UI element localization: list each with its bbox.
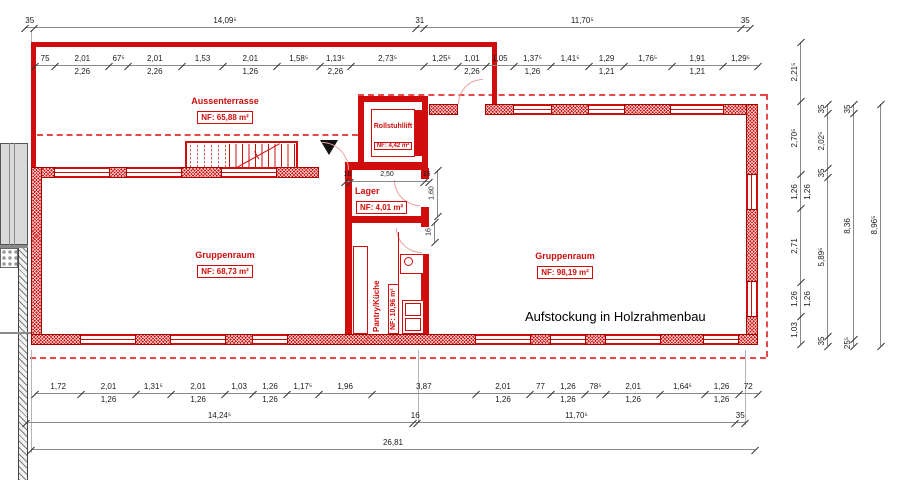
window xyxy=(514,104,551,115)
existing-wall-line xyxy=(9,143,10,245)
lift-wall-bottom xyxy=(345,162,428,170)
appliance-drawer xyxy=(405,303,421,316)
dim-col-right-4: 8,96⁵ xyxy=(880,104,881,346)
dim-row-top-outer: 3514,09⁵3111,70⁵35 xyxy=(25,27,750,28)
existing-wall-hatch xyxy=(18,248,28,480)
existing-wall-line xyxy=(14,143,15,245)
wall-segment xyxy=(551,104,589,115)
wall-segment xyxy=(109,167,127,178)
dashed-terrace-edge xyxy=(37,134,358,136)
wall-segment xyxy=(135,334,171,345)
kitchen-counter-left xyxy=(353,246,368,334)
dashed-outline-bottom xyxy=(30,357,766,359)
area-box: NF: 68,73 m² xyxy=(197,265,253,278)
window xyxy=(589,104,624,115)
dim-row-lager-width: 162,5016 xyxy=(345,181,429,182)
room-area-gruppenraum-rechts: NF: 98,19 m² xyxy=(505,262,625,280)
dim-col-right-1: 2,21⁵2,70⁵1,261,262,711,261,261,03 xyxy=(800,42,801,344)
wall-segment xyxy=(225,334,253,345)
window xyxy=(253,334,287,345)
wall-lager-bottom xyxy=(352,216,421,223)
area-box: NF: 65,88 m² xyxy=(197,111,253,124)
area-box: NF: 4,01 m² xyxy=(356,201,407,214)
dim-row-bottom-mid: 14,24⁵1611,70⁵35 xyxy=(26,422,745,423)
sink-basin-icon xyxy=(404,257,413,266)
annotation-aufstockung: Aufstockung in Holzrahmenbau xyxy=(525,309,706,324)
area-box: NF: 10,96 m² xyxy=(388,284,399,334)
door-swing-entrance xyxy=(458,79,483,104)
room-label-terrasse: Aussenterrasse xyxy=(160,96,290,106)
wall-interior-left xyxy=(345,163,352,334)
wall-left-outer xyxy=(31,167,42,345)
floor-plan: Aussenterrasse NF: 65,88 m² Rollstuhllif… xyxy=(0,0,900,480)
room-label-lager: Lager xyxy=(355,186,411,196)
wall-segment xyxy=(429,104,458,115)
window xyxy=(81,334,135,345)
wall-segment xyxy=(485,104,514,115)
wall-segment xyxy=(287,334,476,345)
wall-segment xyxy=(181,167,222,178)
dim-col-right-3: 358,3625⁵ xyxy=(853,104,854,346)
room-label-gruppenraum-rechts: Gruppenraum xyxy=(505,251,625,261)
wall-right-outer xyxy=(746,209,758,282)
room-label-pantry: Pantry/Küche xyxy=(372,280,381,332)
window xyxy=(222,167,276,178)
window xyxy=(127,167,181,178)
room-area-terrasse: NF: 65,88 m² xyxy=(160,107,290,125)
dim-row-bottom-inner: 1,722,011,261,31⁵2,011,261,031,261,261,1… xyxy=(35,393,758,394)
dim-row-bottom-total: 26,81 xyxy=(31,449,755,450)
appliance-drawer xyxy=(405,318,421,331)
wall-segment xyxy=(530,334,551,345)
lift-wall-right xyxy=(422,96,428,168)
window xyxy=(55,167,109,178)
room-label-lift: Rollstuhllift xyxy=(358,123,428,130)
door-swing-pantry xyxy=(396,228,422,253)
area-box: NF: 4,42 m² xyxy=(374,142,412,150)
dim-col-right-2: 352,02⁵355,89⁵35 xyxy=(827,104,828,346)
existing-ledge-line xyxy=(0,332,31,334)
window xyxy=(746,175,758,209)
room-area-lager: NF: 4,01 m² xyxy=(356,197,422,215)
insulation-hatch xyxy=(0,248,18,268)
extension-line xyxy=(31,350,32,453)
window xyxy=(746,282,758,316)
lift-wall-top xyxy=(358,96,428,102)
wall-segment xyxy=(624,104,671,115)
wall-segment xyxy=(276,167,319,178)
wall-pantry-right xyxy=(421,207,429,227)
window xyxy=(606,334,660,345)
window xyxy=(551,334,585,345)
window xyxy=(171,334,225,345)
room-area-gruppenraum-links: NF: 68,73 m² xyxy=(175,261,275,279)
dim-col-pantry-door: 16 xyxy=(434,222,435,242)
dim-col-lager-depth: 1,60 xyxy=(437,170,438,216)
wall-segment xyxy=(31,334,81,345)
window xyxy=(476,334,530,345)
dashed-outline-right xyxy=(766,94,768,357)
stairs-dashed-treads xyxy=(190,144,228,169)
wall-segment xyxy=(660,334,704,345)
lift-wall-left xyxy=(358,96,364,168)
room-label-gruppenraum-links: Gruppenraum xyxy=(175,250,275,260)
window xyxy=(671,104,723,115)
wall-segment xyxy=(738,334,758,345)
terrace-border-top xyxy=(31,42,497,47)
room-area-lift: NF: 4,42 m² xyxy=(358,134,428,152)
window xyxy=(704,334,738,345)
wall-segment xyxy=(585,334,606,345)
door-swing-terrace xyxy=(322,142,349,170)
area-box: NF: 98,19 m² xyxy=(537,266,593,279)
wall-right-outer xyxy=(746,104,758,175)
dim-row-top-inner: 752,012,2667⁵2,012,261,532,011,261,58⁵1,… xyxy=(35,65,758,66)
